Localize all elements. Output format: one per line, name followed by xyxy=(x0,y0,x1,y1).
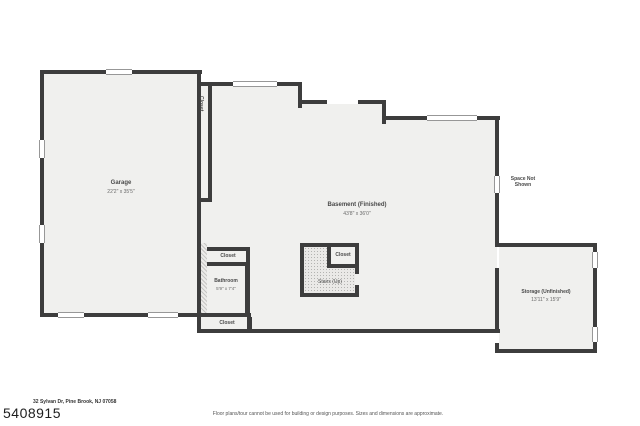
bathroom-dimensions: 5'9" x 7'4" xyxy=(216,286,236,292)
window xyxy=(39,225,45,243)
wall xyxy=(300,243,304,297)
window xyxy=(427,115,477,121)
basement-dimensions: 43'8" x 36'0" xyxy=(343,211,370,217)
window xyxy=(148,312,178,318)
window xyxy=(233,81,277,87)
wall xyxy=(247,317,252,333)
garage-label: Garage xyxy=(111,180,132,188)
storage-dimensions: 13'11" x 15'9" xyxy=(531,297,561,303)
wall xyxy=(355,285,359,297)
closet-upper-label: Closet xyxy=(220,253,235,259)
wall xyxy=(355,243,359,274)
wall xyxy=(298,82,302,108)
stairs-label: Stairs (Up) xyxy=(318,279,342,285)
wall xyxy=(495,268,499,332)
wall xyxy=(197,329,500,333)
wall xyxy=(300,293,359,297)
wall xyxy=(495,243,597,247)
wall xyxy=(495,349,597,353)
window xyxy=(592,327,598,342)
garage-dimensions: 22'2" x 35'5" xyxy=(107,189,134,195)
hatched-wall-strip xyxy=(201,243,207,313)
bathroom-label: Bathroom xyxy=(214,278,238,284)
basement-room-upper-left xyxy=(201,86,302,331)
floorplan-canvas: Garage 22'2" x 35'5" Basement (Finished)… xyxy=(0,0,640,426)
wall xyxy=(40,70,44,317)
wall xyxy=(495,193,499,247)
window xyxy=(106,69,132,75)
window xyxy=(39,140,45,158)
wall xyxy=(382,100,386,124)
space-not-shown-label: Space Not Shown xyxy=(511,176,535,189)
wall xyxy=(245,266,250,313)
storage-label: Storage (Unfinished) xyxy=(521,289,570,295)
disclaimer-text: Floor plans/tour cannot be used for buil… xyxy=(0,411,640,417)
wall xyxy=(208,86,212,200)
wall xyxy=(495,343,499,353)
window xyxy=(494,176,500,193)
basement-room-right xyxy=(383,120,497,331)
window xyxy=(592,252,598,268)
basement-label: Basement (Finished) xyxy=(327,202,386,210)
wall xyxy=(298,100,327,104)
closet-hall-label: Closet xyxy=(198,96,204,111)
wall xyxy=(327,264,359,268)
wall xyxy=(197,198,212,202)
wall xyxy=(207,247,250,251)
window xyxy=(58,312,84,318)
wall xyxy=(495,116,499,176)
closet-lower-label: Closet xyxy=(219,320,234,326)
closet-stairs-label: Closet xyxy=(335,252,350,258)
wall xyxy=(207,262,250,266)
